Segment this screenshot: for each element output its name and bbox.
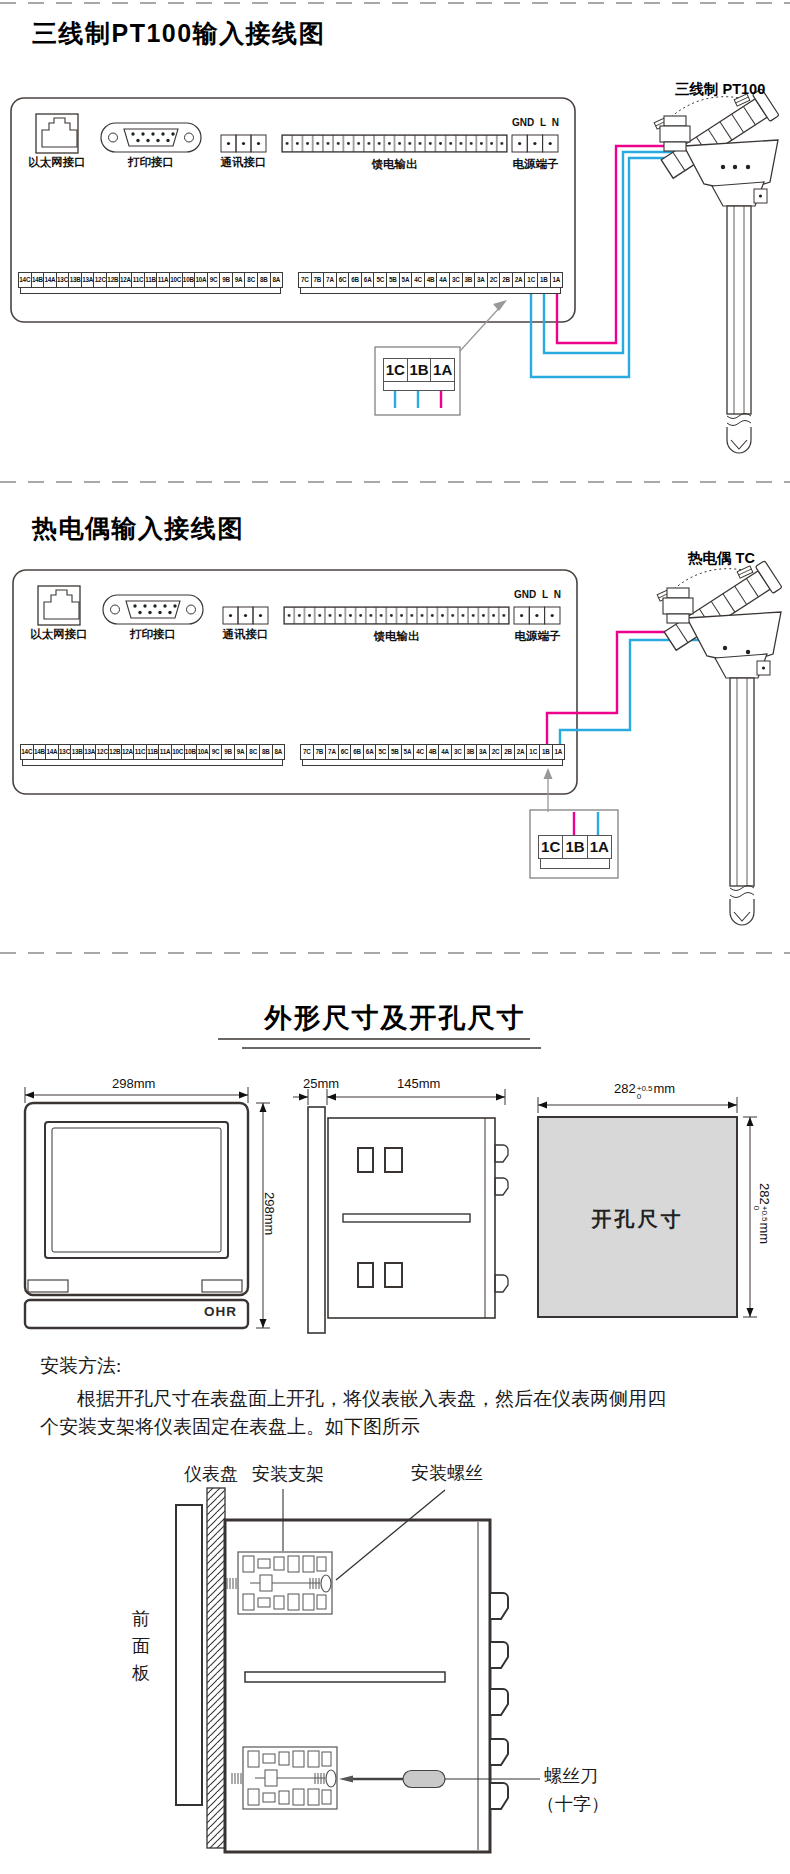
front-height-dim: 298mm [262,1192,277,1235]
zoom-cell: 1A [588,836,611,858]
side-view [308,1107,508,1333]
terminal-cell: 11C [134,745,147,759]
terminal-cell: 8C [247,745,260,759]
feed-label: 馈电输出 [365,157,424,172]
terminal-cell: 8B [260,745,273,759]
terminal-cell: 6B [351,745,364,759]
zoom-cells-tc: 1C1B1A [538,835,612,859]
terminal-cell: 12C [96,745,109,759]
label-panel-board: 仪表盘 [184,1462,238,1486]
power-pin: N [552,117,559,128]
terminal-cell: 7B [312,273,325,287]
terminal-cell: 7A [326,745,339,759]
terminal-cell: 2A [515,745,528,759]
terminal-cell: 13A [84,745,97,759]
terminal-cell: 14A [44,273,57,287]
terminal-cell: 9C [208,273,221,287]
terminal-cell: 9B [222,745,235,759]
front-panel-bar [176,1505,202,1805]
pt100-title: 三线制PT100输入接线图 [32,17,325,50]
terminal-cell: 11A [159,745,172,759]
terminal-cell: 6C [337,273,350,287]
terminal-cell: 3C [452,745,465,759]
terminal-cell: 14B [34,745,47,759]
terminal-cell: 11B [145,273,158,287]
terminal-cell: 5B [389,745,402,759]
tc-diagram [13,561,782,925]
panel-board-bar [207,1488,225,1848]
cutout-tol-up: +0.5 [761,1206,769,1222]
terminal-cell: 8A [273,745,285,759]
terminal-cell: 9B [220,273,233,287]
cutout-tol-down: 0 [637,1093,653,1101]
terminal-cell: 1C [527,745,540,759]
terminal-cell: 12B [109,745,122,759]
terminal-strip-left-2: 14C14B14A13C13B13A12C12B12A11C11B11A10C1… [20,744,285,766]
body-clips [490,1593,508,1809]
terminal-cell: 11A [157,273,170,287]
terminal-cell: 3A [477,745,490,759]
terminal-cell: 3C [450,273,463,287]
terminal-cell: 1A [553,745,565,759]
terminal-cell: 9A [235,745,248,759]
install-line2: 个安装支架将仪表固定在表盘上。如下图所示 [40,1414,420,1440]
cutout-tol-down: 0 [753,1206,761,1222]
power-label-2: 电源端子 [514,629,561,644]
mounting-bracket-bottom [232,1747,337,1809]
terminal-cell: 8A [271,273,283,287]
terminal-strip-left: 14C14B14A13C13B13A12C12B12A11C11B11A10C1… [18,272,283,294]
front-width-dim: 298mm [112,1076,155,1091]
zoom-cell: 1C [539,836,563,858]
terminal-cell: 10A [197,745,210,759]
front-view [25,1103,248,1328]
power-pin: GND [512,117,534,128]
terminal-cell: 7B [314,745,327,759]
cutout-unit: mm [654,1081,676,1096]
pt100-diagram [11,89,779,453]
power-pin: L [542,589,548,600]
cutout-unit: mm [757,1223,772,1245]
terminal-cell: 10B [183,273,196,287]
terminal-cell: 4B [425,273,438,287]
terminal-cell: 1C [525,273,538,287]
zoom-cell: 1B [408,359,432,381]
terminal-cell: 6A [364,745,377,759]
label-screwdriver: 螺丝刀 [544,1764,598,1788]
label-mounting-bracket: 安装支架 [252,1462,324,1486]
terminal-cell: 9A [233,273,246,287]
terminal-cell: 2B [502,745,515,759]
install-line1: 根据开孔尺寸在表盘面上开孔，将仪表嵌入表盘，然后在仪表两侧用四 [77,1386,666,1412]
zoom-cell: 1A [431,359,454,381]
terminal-cell: 5A [402,745,415,759]
tc-title: 热电偶输入接线图 [32,512,244,545]
terminal-strip-right-2: 7C7B7A6C6B6A5C5B5A4C4B4A3C3B3A2C2B2A1C1B… [300,744,565,766]
terminal-cell: 4C [412,273,425,287]
power-pin: GND [514,589,536,600]
terminal-cell: 1A [551,273,563,287]
pt100-sensor-label: 三线制 PT100 [675,80,765,99]
ethernet-label-2: 以太网接口 [28,627,90,642]
feed-label-2: 馈电输出 [367,629,426,644]
label-front-panel: 前面板 [130,1606,152,1687]
terminal-cell: 8B [258,273,271,287]
terminal-cell: 3B [465,745,478,759]
ethernet-label: 以太网接口 [26,155,88,170]
cutout-base: 282 [757,1183,772,1205]
dimensions-title: 外形尺寸及开孔尺寸 [0,1000,790,1036]
terminal-cell: 13B [71,745,84,759]
terminal-cell: 4A [437,273,450,287]
cutout-width-dim: 282+0.50mm [614,1081,675,1100]
terminal-cell: 13C [59,745,72,759]
terminal-cell: 6B [349,273,362,287]
terminal-cell: 10B [185,745,198,759]
terminal-cell: 2B [500,273,513,287]
terminal-cell: 5B [387,273,400,287]
cutout-height-dim: 282+0.50mm [753,1183,772,1244]
terminal-cell: 13C [57,273,70,287]
terminal-strip-right: 7C7B7A6C6B6A5C5B5A4C4B4A3C3B3A2C2B2A1C1B… [298,272,563,294]
terminal-cell: 7C [299,273,312,287]
front-panel-char: 板 [130,1660,152,1687]
terminal-cell: 6C [339,745,352,759]
terminal-cell: 5C [376,745,389,759]
side-bezel-dim: 25mm [303,1076,339,1091]
pt100-sensor [654,89,779,453]
power-pin: L [540,117,546,128]
zoom-empty-row [383,381,455,391]
side-depth-dim: 145mm [397,1076,440,1091]
terminal-cell: 1B [538,273,551,287]
terminal-cell: 7A [324,273,337,287]
terminal-cell: 13B [69,273,82,287]
front-panel-char: 面 [130,1633,152,1660]
terminal-cell: 2C [488,273,501,287]
body-slot [245,1672,445,1682]
terminal-cell: 6A [362,273,375,287]
terminal-cell: 10C [172,745,185,759]
terminal-cell: 14B [32,273,45,287]
terminal-cell: 1B [540,745,553,759]
brand-logo: OHR [204,1304,237,1319]
terminal-cell: 2A [513,273,526,287]
side-dims [293,1089,505,1105]
comm-label-2: 通讯接口 [222,627,269,642]
printer-label: 打印接口 [128,155,174,170]
terminal-cell: 7C [301,745,314,759]
zoom-cells-pt100: 1C1B1A [383,358,455,382]
terminal-cell: 3A [475,273,488,287]
printer-label-2: 打印接口 [130,627,176,642]
front-panel-char: 前 [130,1606,152,1633]
terminal-cell: 14C [21,745,34,759]
terminal-cell: 14A [46,745,59,759]
power-pin-labels-2: GNDLN [514,589,561,600]
terminal-cell: 14C [19,273,32,287]
label-mounting-screw: 安装螺丝 [411,1461,483,1485]
terminal-cell: 11B [147,745,160,759]
terminal-cell: 4A [439,745,452,759]
cutout-base: 282 [614,1081,636,1096]
terminal-cell: 9C [210,745,223,759]
terminal-cell: 12B [107,273,120,287]
terminal-cell: 8C [245,273,258,287]
manual-page: 三线制PT100输入接线图 三线制 PT100 以太网接口 打印接口 通讯接口 … [0,0,790,1874]
install-heading: 安装方法: [40,1353,121,1379]
terminal-cell: 12A [120,273,133,287]
terminal-cell: 3B [463,273,476,287]
terminal-cell: 13A [82,273,95,287]
terminal-cell: 12C [94,273,107,287]
tc-sensor-label: 热电偶 TC [688,549,755,568]
label-screwdriver-type: （十字） [537,1792,609,1816]
terminal-cell: 10A [195,273,208,287]
installation-drawing [176,1488,540,1852]
power-label: 电源端子 [512,157,559,172]
cutout-label: 开孔尺寸 [538,1206,737,1233]
power-pin: N [554,589,561,600]
terminal-cell: 5A [400,273,413,287]
terminal-cell: 10C [170,273,183,287]
terminal-cell: 11C [132,273,145,287]
mounting-bracket-top [227,1552,332,1614]
zoom-cell: 1B [563,836,587,858]
terminal-cell: 2C [490,745,503,759]
power-pin-labels: GNDLN [512,117,559,128]
terminal-cell: 4C [414,745,427,759]
zoom-cell: 1C [384,359,408,381]
tc-sensor [657,561,782,925]
comm-label: 通讯接口 [220,155,267,170]
terminal-cell: 12A [122,745,135,759]
zoom-empty-row-2 [540,858,610,869]
terminal-cell: 5C [374,273,387,287]
terminal-cell: 4B [427,745,440,759]
